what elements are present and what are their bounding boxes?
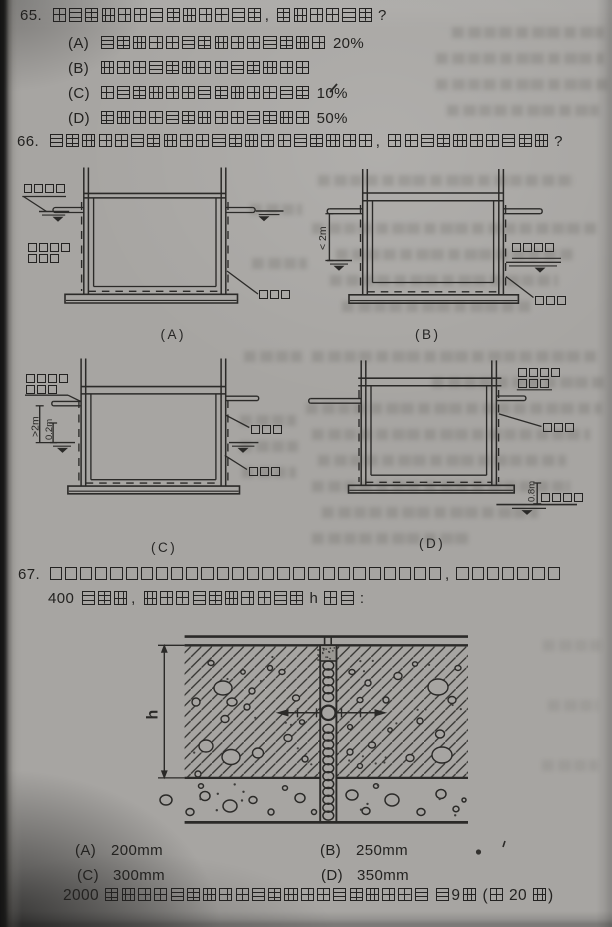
svg-text:0.8m: 0.8m — [527, 481, 538, 502]
svg-text:h: h — [145, 710, 162, 720]
svg-text:< 2m: < 2m — [317, 226, 329, 250]
svg-text:>2m: >2m — [30, 416, 42, 437]
svg-text:0.2m: 0.2m — [44, 419, 55, 440]
